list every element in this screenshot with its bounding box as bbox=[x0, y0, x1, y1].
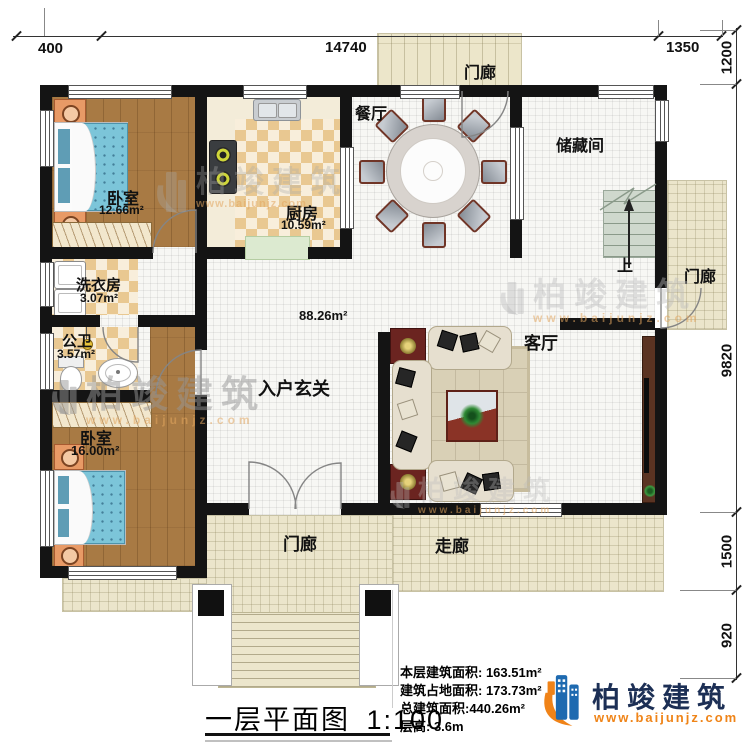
room-label-porch-right: 门廊 bbox=[684, 263, 716, 287]
door-arc bbox=[661, 288, 701, 328]
area-label-bedroom2: 16.00m² bbox=[71, 443, 119, 458]
brand-website: www.baijunjz.com bbox=[594, 710, 738, 725]
floor-plan-canvas: 卧室 12.66m² 厨房 10.59m² 餐厅 储藏间 门廊 门廊 洗衣房 3… bbox=[0, 0, 750, 746]
extension-line bbox=[700, 84, 736, 85]
room-label-foyer: 入户玄关 bbox=[258, 375, 330, 401]
area-label-laundry: 3.07m² bbox=[80, 291, 118, 305]
room-label-porch-bottom: 门廊 bbox=[283, 530, 317, 555]
room-label-dining: 餐厅 bbox=[355, 100, 387, 124]
extension-line bbox=[658, 20, 659, 36]
brand-logo: 柏竣建筑 www.baijunjz.com bbox=[535, 670, 745, 730]
dim-label-1350: 1350 bbox=[666, 39, 699, 56]
dimension-line-right bbox=[736, 28, 737, 680]
stat-footprint-area: 建筑占地面积: 173.73m² bbox=[400, 682, 542, 700]
area-label-foyer: 88.26m² bbox=[299, 308, 347, 323]
title-underline-thin bbox=[205, 740, 392, 742]
room-label-living: 客厅 bbox=[524, 329, 558, 354]
room-label-corridor: 走廊 bbox=[435, 532, 469, 557]
area-label-bedroom1: 12.66m² bbox=[99, 203, 144, 217]
dim-label-400: 400 bbox=[38, 40, 63, 57]
room-label-porch-top: 门廊 bbox=[464, 59, 496, 83]
door-arc bbox=[462, 91, 508, 137]
dim-label-1200: 1200 bbox=[719, 37, 736, 79]
entrance-door-right bbox=[295, 463, 341, 509]
area-label-kitchen: 10.59m² bbox=[281, 218, 326, 232]
extension-line bbox=[722, 20, 723, 36]
door-arc bbox=[153, 210, 196, 253]
dim-label-920: 920 bbox=[719, 618, 736, 654]
stat-total-area: 总建筑面积:440.26m² bbox=[400, 700, 542, 718]
stat-story-height: 层高: 3.6m bbox=[400, 718, 542, 736]
dim-label-9820: 9820 bbox=[719, 340, 736, 382]
extension-line bbox=[680, 590, 736, 591]
title-underline bbox=[205, 733, 390, 736]
door-arc bbox=[103, 327, 138, 362]
entrance-door-left bbox=[249, 462, 296, 509]
brand-logo-icon bbox=[535, 670, 585, 728]
dim-label-14740: 14740 bbox=[325, 39, 367, 56]
drawing-title: 一层平面图 bbox=[205, 705, 350, 735]
ground-outline bbox=[392, 590, 393, 708]
stairs-up-label: 上 bbox=[617, 252, 633, 276]
stair-arrow-head bbox=[624, 198, 634, 211]
stat-floor-area: 本层建筑面积: 163.51m² bbox=[400, 664, 542, 682]
room-label-storage: 储藏间 bbox=[556, 132, 604, 156]
dimension-line-top bbox=[13, 36, 723, 37]
door-arc bbox=[156, 350, 201, 395]
building-stats: 本层建筑面积: 163.51m² 建筑占地面积: 173.73m² 总建筑面积:… bbox=[400, 664, 542, 736]
dim-label-1500: 1500 bbox=[719, 531, 736, 573]
extension-line bbox=[700, 512, 736, 513]
area-label-bathroom: 3.57m² bbox=[57, 347, 95, 361]
extension-line bbox=[700, 30, 736, 31]
extension-line bbox=[44, 8, 45, 36]
